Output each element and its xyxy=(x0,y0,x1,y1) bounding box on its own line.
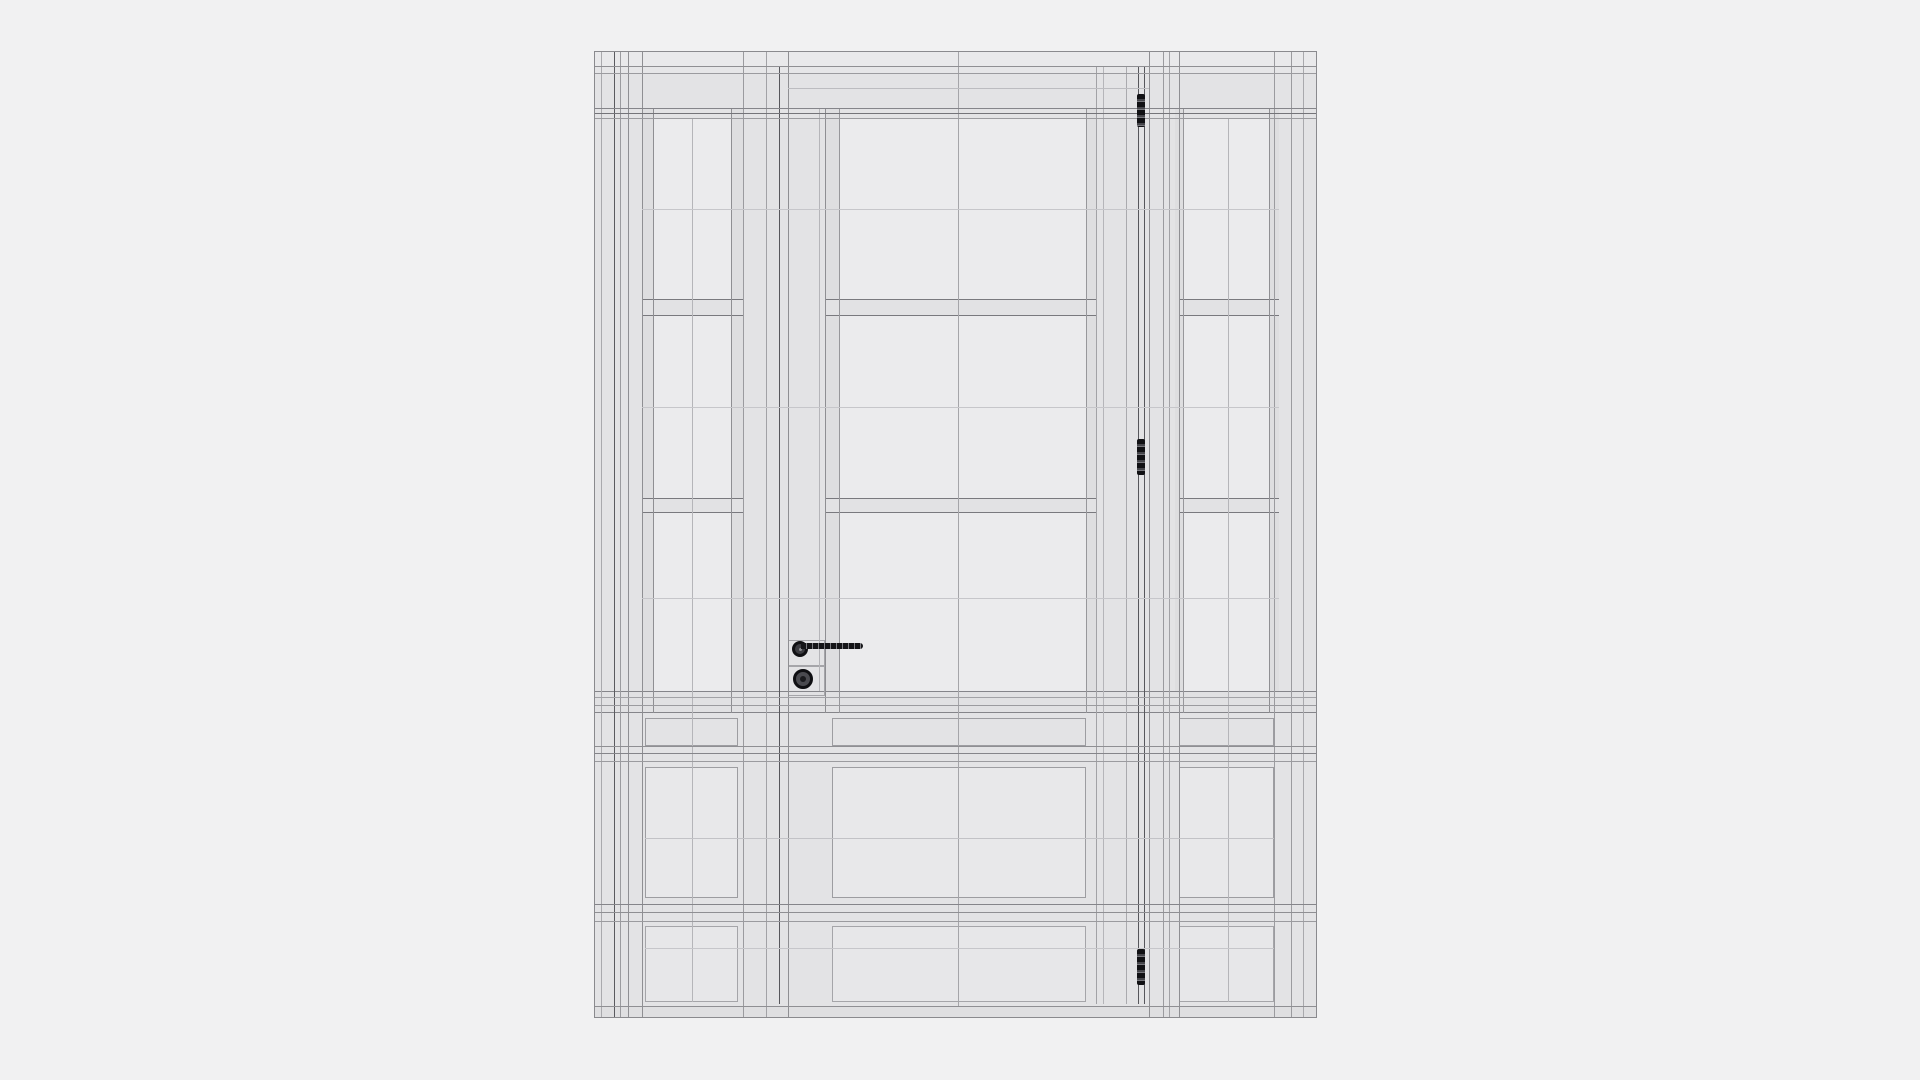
glass-frame-strip xyxy=(642,108,653,713)
frame-line-horizontal xyxy=(595,1006,1317,1007)
bottom-panel xyxy=(832,926,1086,1002)
sub-panel xyxy=(1179,718,1274,746)
frame-line-vertical xyxy=(788,52,789,1018)
sub-panel xyxy=(832,718,1086,746)
cylinder-knob-core xyxy=(800,676,806,682)
frame-line-vertical xyxy=(628,52,629,1018)
frame-line-vertical xyxy=(743,52,744,1018)
frame-line-horizontal xyxy=(788,88,1149,89)
frame-line-vertical xyxy=(1144,66,1145,1004)
frame-line-vertical xyxy=(1291,52,1292,1018)
frame-line-vertical xyxy=(1303,52,1304,1018)
frame-line-vertical xyxy=(1169,52,1170,1018)
frame-line-horizontal xyxy=(645,948,1274,949)
frame-line-vertical xyxy=(1086,108,1087,713)
frame-line-vertical xyxy=(1274,52,1275,1018)
frame-line-vertical xyxy=(779,66,780,1004)
hinge-middle xyxy=(1137,439,1145,475)
sill-band xyxy=(595,691,1317,713)
frame-line-horizontal xyxy=(595,113,1317,114)
frame-line-vertical xyxy=(1149,52,1150,1018)
frame-line-horizontal xyxy=(595,108,1317,109)
frame-line-vertical xyxy=(653,108,654,713)
frame-line-horizontal xyxy=(595,761,1317,762)
frame-line-horizontal xyxy=(642,407,1279,408)
lever-handle xyxy=(801,643,863,649)
frame-line-vertical xyxy=(614,52,615,1018)
frame-line-horizontal xyxy=(595,753,1317,754)
frame-line-horizontal xyxy=(595,904,1317,905)
frame-line-vertical xyxy=(1179,52,1180,1018)
frame-line-vertical xyxy=(1103,66,1104,1004)
frame-line-vertical xyxy=(1183,108,1184,713)
bottom-panel xyxy=(1179,926,1274,1002)
mid-panel xyxy=(832,767,1086,898)
frame-line-horizontal xyxy=(595,912,1317,913)
glass-frame-strip xyxy=(731,108,743,713)
mid-panel xyxy=(1179,767,1274,898)
frame-line-vertical xyxy=(1269,108,1270,713)
frame-line-horizontal xyxy=(595,746,1317,747)
frame-line-vertical xyxy=(1138,66,1139,1004)
frame-line-horizontal xyxy=(595,697,1317,698)
frame-line-vertical xyxy=(620,52,621,1018)
frame-line-vertical xyxy=(839,108,840,713)
bottom-strip xyxy=(595,1006,1317,1018)
frame-line-vertical xyxy=(766,52,767,1018)
glazing-bar xyxy=(1179,498,1279,513)
frame-line-vertical xyxy=(825,108,826,713)
frame-line-vertical xyxy=(958,52,959,1006)
frame-line-vertical xyxy=(731,108,732,713)
frame-line-horizontal xyxy=(595,705,1317,706)
sidelight-right-glass xyxy=(1183,118,1269,691)
frame-line-horizontal xyxy=(595,66,1317,67)
frame-line-vertical xyxy=(601,52,602,1018)
frame-line-vertical xyxy=(819,108,820,691)
frame-line-vertical xyxy=(1096,66,1097,1004)
frame-line-vertical xyxy=(1163,52,1164,1018)
frame-line-vertical xyxy=(642,52,643,1018)
glass-frame-strip xyxy=(825,108,839,713)
glass-frame-strip xyxy=(1086,108,1096,713)
glazing-bar xyxy=(825,299,1096,316)
frame-line-vertical xyxy=(1126,66,1127,1004)
frame-head-lower xyxy=(595,66,1317,73)
hinge-top xyxy=(1137,94,1145,127)
frame-line-horizontal xyxy=(645,838,1274,839)
render-canvas xyxy=(0,0,1920,1080)
frame-line-horizontal xyxy=(595,921,1317,922)
frame-line-horizontal xyxy=(642,598,1279,599)
hinge-bottom xyxy=(1137,949,1145,985)
frame-head-band xyxy=(595,52,1317,66)
glazing-bar xyxy=(825,498,1096,513)
glazing-bar xyxy=(1179,299,1279,316)
door-assembly xyxy=(594,51,1317,1018)
frame-line-horizontal xyxy=(595,118,1317,119)
frame-line-vertical xyxy=(1228,118,1229,1002)
frame-line-horizontal xyxy=(595,73,1317,74)
frame-line-vertical xyxy=(692,118,693,1002)
frame-line-horizontal xyxy=(642,209,1279,210)
door-glass xyxy=(839,118,1086,691)
